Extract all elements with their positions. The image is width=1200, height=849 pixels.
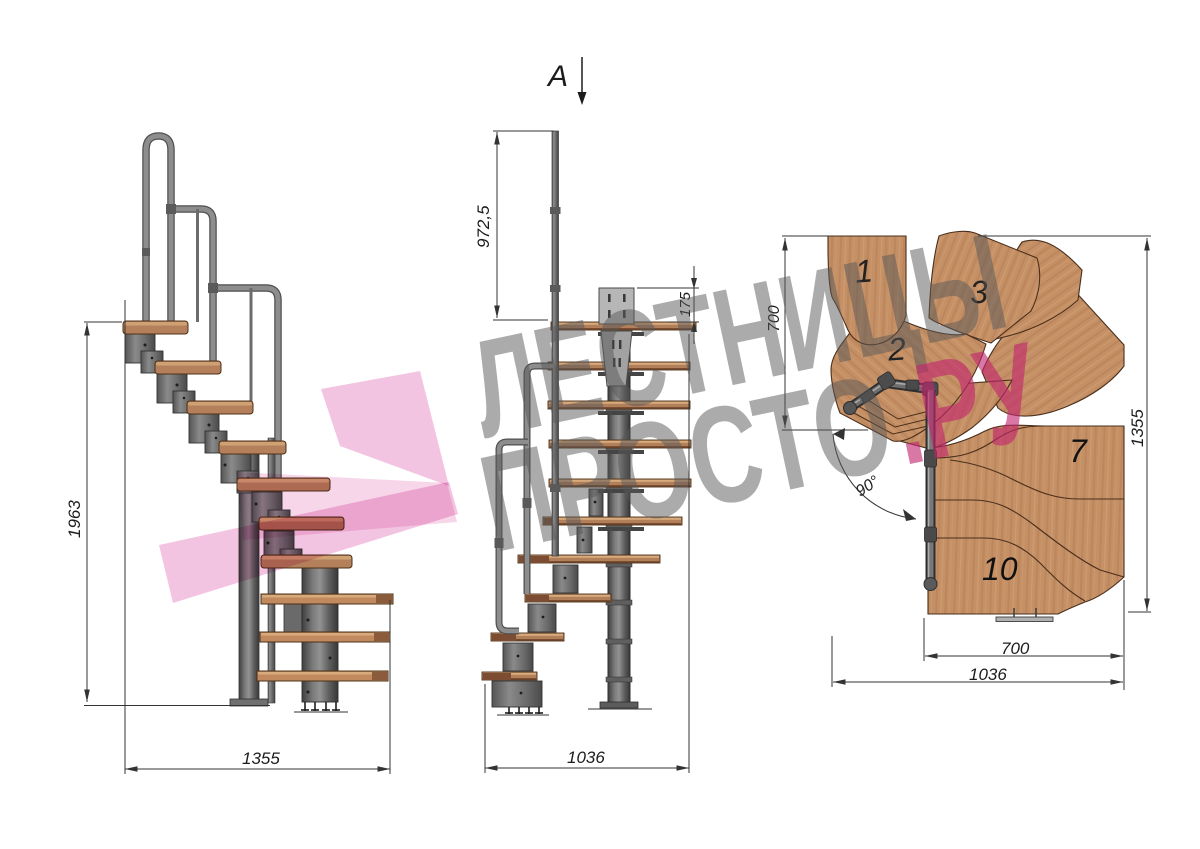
svg-text:7: 7 [1069,433,1088,469]
svg-text:10: 10 [982,551,1018,587]
svg-text:1036: 1036 [969,665,1007,684]
svg-text:1963: 1963 [65,500,84,538]
svg-text:972,5: 972,5 [474,205,493,248]
svg-text:1036: 1036 [567,748,605,767]
svg-text:A: A [546,60,568,93]
svg-text:1355: 1355 [242,749,280,768]
svg-text:1355: 1355 [1128,409,1147,447]
svg-text:700: 700 [1001,639,1030,658]
